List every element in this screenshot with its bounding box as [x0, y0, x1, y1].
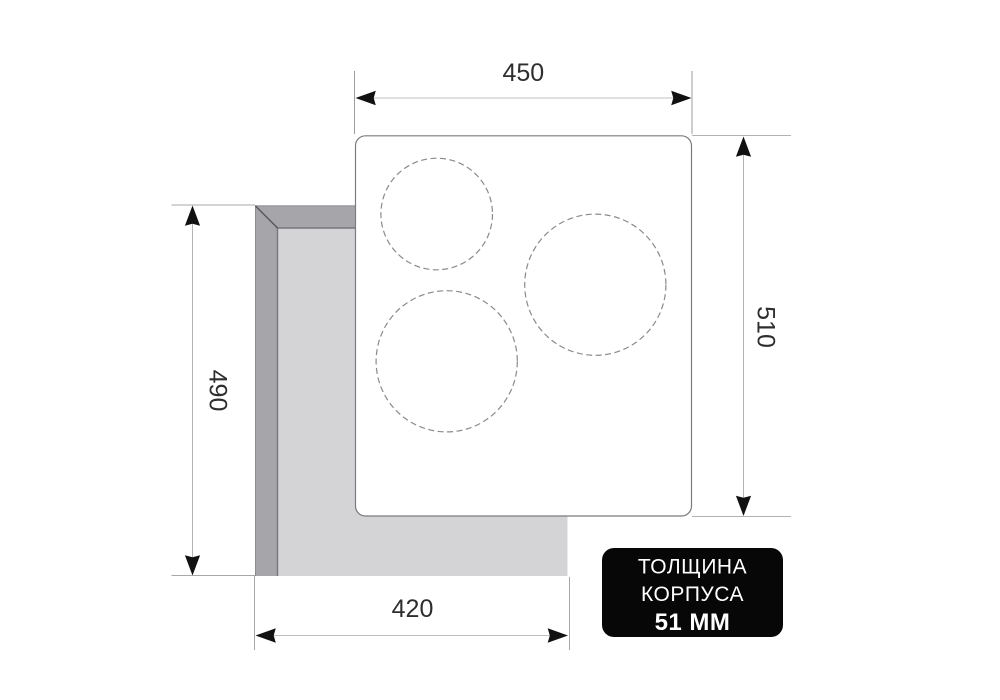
svg-text:510: 510 [752, 306, 780, 348]
svg-text:51 ММ: 51 ММ [655, 609, 731, 636]
svg-text:КОРПУСА: КОРПУСА [641, 583, 744, 606]
svg-text:450: 450 [502, 59, 544, 87]
svg-text:490: 490 [204, 370, 232, 412]
svg-text:420: 420 [392, 595, 434, 623]
svg-text:ТОЛЩИНА: ТОЛЩИНА [638, 556, 747, 579]
